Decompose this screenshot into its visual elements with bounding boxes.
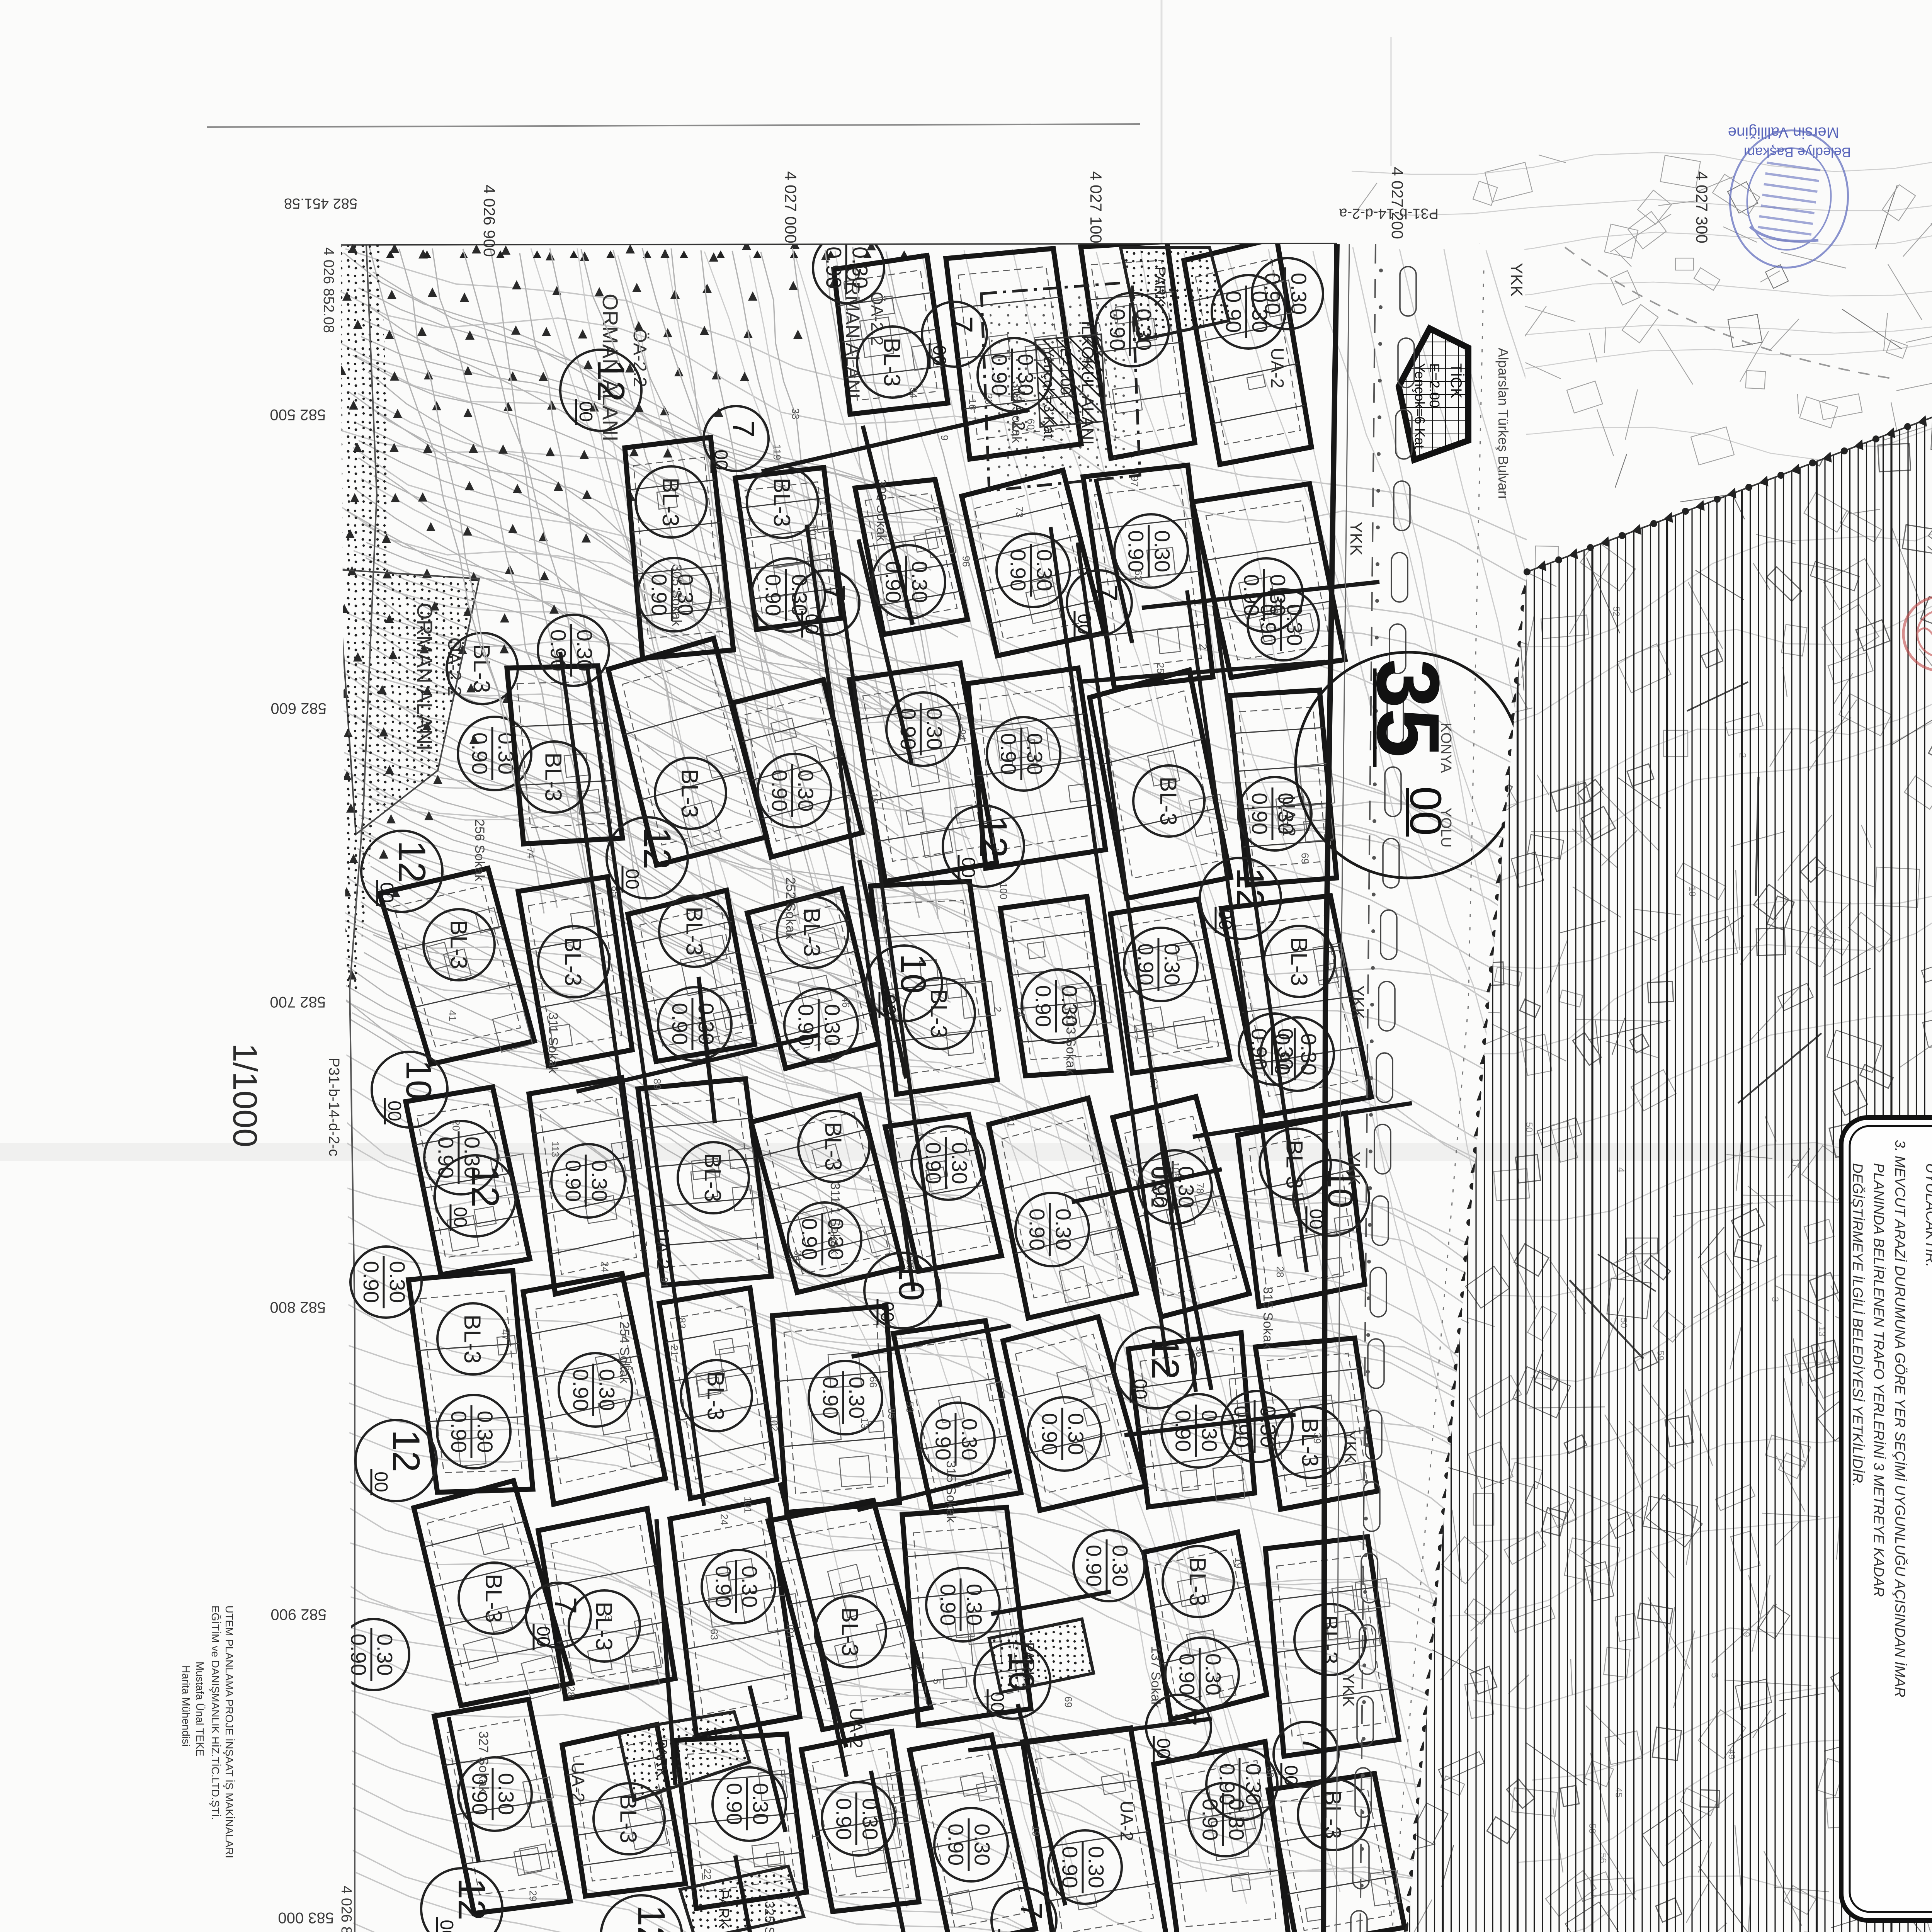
svg-text:24: 24 — [599, 1261, 611, 1272]
svg-text:52: 52 — [1611, 606, 1621, 617]
svg-text:47: 47 — [499, 1329, 511, 1340]
svg-text:0.90: 0.90 — [1230, 1406, 1254, 1448]
svg-text:582 451.58: 582 451.58 — [284, 195, 357, 211]
svg-text:12: 12 — [972, 815, 1015, 858]
svg-text:7: 7 — [1014, 1902, 1049, 1919]
svg-text:00: 00 — [533, 1626, 553, 1646]
svg-text:0.90: 0.90 — [468, 733, 492, 775]
svg-text:BL-3: BL-3 — [541, 753, 566, 802]
svg-text:00: 00 — [1130, 1379, 1150, 1399]
svg-text:Harita Mühendisi: Harita Mühendisi — [180, 1665, 192, 1747]
svg-text:0.30: 0.30 — [1023, 733, 1047, 775]
svg-text:254 Sokak: 254 Sokak — [617, 1321, 632, 1384]
svg-text:BL-3: BL-3 — [700, 1153, 726, 1202]
svg-text:4 027 000: 4 027 000 — [782, 171, 800, 243]
svg-text:0.30: 0.30 — [962, 1584, 986, 1626]
svg-text:315 Sokak: 315 Sokak — [1260, 1287, 1275, 1349]
svg-text:78: 78 — [1194, 1183, 1206, 1194]
svg-text:16: 16 — [967, 399, 978, 410]
svg-text:UYULACAKTIR.: UYULACAKTIR. — [1923, 1163, 1932, 1267]
svg-text:19: 19 — [1233, 1557, 1244, 1568]
svg-text:0.90: 0.90 — [767, 769, 792, 811]
svg-text:0.30: 0.30 — [970, 1823, 995, 1866]
svg-text:0.30: 0.30 — [957, 1418, 981, 1461]
svg-text:00: 00 — [1281, 1765, 1301, 1786]
svg-text:0.90: 0.90 — [447, 1411, 471, 1453]
svg-text:PARK: PARK — [653, 1739, 670, 1778]
svg-text:BL-3: BL-3 — [837, 1607, 863, 1656]
svg-text:100: 100 — [998, 883, 1009, 899]
svg-text:UA-2: UA-2 — [1117, 1801, 1137, 1841]
svg-text:BL-3: BL-3 — [879, 338, 905, 387]
svg-text:5: 5 — [931, 1679, 943, 1684]
svg-text:BL-3: BL-3 — [446, 920, 471, 969]
svg-text:20: 20 — [450, 1120, 462, 1131]
svg-text:12: 12 — [464, 1165, 507, 1207]
svg-text:DEĞİŞTİRMEYE İLGİLİ BELEDİYESİ: DEĞİŞTİRMEYE İLGİLİ BELEDİYESİ YETKİLİDİ… — [1850, 1163, 1866, 1487]
svg-text:0.30: 0.30 — [947, 1142, 972, 1184]
svg-text:25: 25 — [1155, 663, 1166, 674]
svg-text:69: 69 — [1299, 853, 1311, 864]
svg-text:4 026 852.08: 4 026 852.08 — [320, 247, 337, 333]
svg-text:PLANINDA BELİRLENEN TRAFO YERL: PLANINDA BELİRLENEN TRAFO YERLERİNİ 3 ME… — [1871, 1163, 1887, 1597]
svg-text:YKK: YKK — [1345, 1151, 1364, 1185]
svg-text:582 700: 582 700 — [270, 993, 326, 1010]
svg-text:0.30: 0.30 — [595, 1369, 619, 1411]
svg-text:59: 59 — [1655, 1350, 1666, 1361]
svg-text:311 Sokak: 311 Sokak — [546, 1012, 560, 1074]
svg-text:89: 89 — [651, 1078, 663, 1090]
svg-text:00: 00 — [436, 1920, 457, 1932]
svg-text:0.30: 0.30 — [587, 1160, 612, 1202]
svg-text:Belediye Başkanı: Belediye Başkanı — [1743, 145, 1851, 160]
svg-text:BL-3: BL-3 — [616, 1794, 641, 1843]
svg-text:KONYA: KONYA — [1438, 723, 1454, 773]
svg-text:BL-3: BL-3 — [677, 769, 703, 818]
svg-text:1/1000: 1/1000 — [226, 1043, 264, 1147]
svg-text:BL-3: BL-3 — [799, 908, 825, 957]
svg-text:BL-3: BL-3 — [459, 1315, 485, 1364]
svg-text:UA-2: UA-2 — [846, 1708, 866, 1748]
svg-text:0.30: 0.30 — [922, 708, 947, 750]
svg-text:BL-3: BL-3 — [481, 1574, 507, 1623]
svg-text:BL-3: BL-3 — [658, 478, 684, 527]
svg-text:BL-3: BL-3 — [820, 1122, 846, 1171]
svg-text:YKK: YKK — [1507, 263, 1526, 297]
svg-text:2: 2 — [992, 1007, 1003, 1012]
svg-text:0.90: 0.90 — [921, 1142, 946, 1184]
svg-text:12: 12 — [636, 827, 679, 869]
svg-text:P31-b-14-d-2-a: P31-b-14-d-2-a — [1338, 205, 1439, 221]
svg-text:0.90: 0.90 — [936, 1584, 960, 1626]
svg-text:0.90: 0.90 — [944, 1823, 968, 1866]
svg-text:0.90: 0.90 — [1260, 273, 1285, 315]
svg-text:94: 94 — [908, 387, 920, 398]
svg-text:256 Sokak: 256 Sokak — [472, 819, 487, 882]
svg-text:0.30: 0.30 — [1150, 530, 1175, 572]
svg-text:0.30: 0.30 — [787, 574, 812, 616]
svg-text:1: 1 — [810, 1834, 821, 1839]
svg-text:309 Sokak: 309 Sokak — [874, 479, 889, 542]
svg-text:0.90: 0.90 — [561, 1160, 585, 1202]
svg-text:0.30: 0.30 — [1282, 604, 1307, 646]
svg-text:12: 12 — [590, 359, 633, 402]
svg-text:22: 22 — [702, 1869, 713, 1880]
svg-text:0.90: 0.90 — [434, 1136, 458, 1179]
svg-text:YKK: YKK — [1341, 1430, 1360, 1464]
svg-text:Mersin Valiliğine: Mersin Valiliğine — [1728, 124, 1839, 141]
svg-text:12: 12 — [630, 1905, 673, 1932]
svg-text:BL-3: BL-3 — [681, 906, 707, 956]
svg-text:0.90: 0.90 — [1175, 1653, 1199, 1696]
svg-text:BL-3: BL-3 — [560, 937, 586, 986]
svg-text:7: 7 — [817, 585, 852, 602]
svg-text:00: 00 — [622, 869, 642, 889]
svg-text:0.30: 0.30 — [848, 247, 872, 289]
svg-text:0.90: 0.90 — [818, 1376, 843, 1418]
svg-text:0.90: 0.90 — [821, 247, 846, 289]
svg-text:113: 113 — [549, 1141, 561, 1157]
svg-text:BL-3: BL-3 — [1155, 777, 1181, 826]
svg-text:39: 39 — [1311, 1433, 1323, 1444]
svg-text:00: 00 — [376, 882, 397, 903]
svg-text:85: 85 — [886, 1408, 898, 1419]
svg-text:12: 12 — [385, 1430, 428, 1472]
svg-text:69: 69 — [1063, 1696, 1074, 1708]
svg-text:4 027 100: 4 027 100 — [1087, 171, 1105, 243]
svg-text:94: 94 — [957, 729, 968, 740]
svg-text:YKK: YKK — [1349, 985, 1367, 1019]
svg-text:İLKOKUL ALANI: İLKOKUL ALANI — [1078, 321, 1097, 445]
svg-text:0.90: 0.90 — [1006, 549, 1031, 591]
svg-text:0.30: 0.30 — [820, 1004, 845, 1046]
svg-text:0.30: 0.30 — [494, 1773, 519, 1815]
svg-text:0.90: 0.90 — [997, 733, 1021, 775]
svg-text:582 500: 582 500 — [270, 406, 326, 423]
svg-text:0.90: 0.90 — [761, 574, 786, 616]
svg-text:BL-3: BL-3 — [703, 1371, 729, 1420]
svg-text:4 026 900: 4 026 900 — [480, 185, 498, 257]
svg-text:0.90: 0.90 — [1025, 1208, 1049, 1250]
svg-text:101: 101 — [742, 1497, 754, 1513]
svg-text:E=1.00: E=1.00 — [1057, 348, 1073, 395]
svg-text:0.30: 0.30 — [748, 1783, 773, 1825]
svg-text:0.30: 0.30 — [1241, 1763, 1265, 1805]
svg-text:0.30: 0.30 — [373, 1634, 397, 1676]
svg-text:BL-3: BL-3 — [1185, 1557, 1211, 1606]
svg-text:582 600: 582 600 — [270, 700, 327, 717]
svg-text:305 Sokak: 305 Sokak — [669, 564, 684, 627]
svg-text:0.90: 0.90 — [722, 1783, 747, 1825]
svg-text:311/1 Sokak: 311/1 Sokak — [828, 1182, 842, 1255]
svg-text:10: 10 — [399, 1060, 439, 1100]
svg-text:00: 00 — [958, 857, 978, 878]
svg-text:0.30: 0.30 — [1051, 1208, 1076, 1250]
svg-text:00: 00 — [371, 1471, 391, 1492]
svg-text:7: 7 — [726, 420, 761, 437]
svg-text:Alparslan Türkeş Bulvarı: Alparslan Türkeş Bulvarı — [1495, 348, 1511, 499]
svg-text:0.30: 0.30 — [1160, 943, 1184, 985]
svg-text:582 800: 582 800 — [270, 1299, 326, 1316]
svg-text:50: 50 — [1618, 1318, 1629, 1328]
svg-text:EĞİTİM ve DANIŞMANLIK HİZ.TİC.: EĞİTİM ve DANIŞMANLIK HİZ.TİC.LTD.ŞTİ. — [209, 1605, 221, 1820]
svg-text:00: 00 — [1153, 1738, 1173, 1759]
svg-text:0.30: 0.30 — [1108, 1545, 1133, 1587]
svg-text:0.90: 0.90 — [1248, 793, 1272, 835]
svg-text:62: 62 — [1133, 570, 1144, 581]
svg-text:46: 46 — [840, 997, 852, 1008]
svg-text:UTEM PLANLAMA PROJE İNŞAAT İŞ: UTEM PLANLAMA PROJE İNŞAAT İŞ MAKİNALARI — [223, 1605, 235, 1858]
svg-text:0.90: 0.90 — [1124, 530, 1148, 572]
svg-text:2: 2 — [1197, 644, 1209, 649]
svg-text:583 000: 583 000 — [278, 1909, 334, 1926]
svg-text:00: 00 — [384, 1100, 405, 1121]
svg-text:74: 74 — [1015, 1006, 1027, 1017]
svg-text:E=2.00: E=2.00 — [1427, 363, 1442, 408]
svg-text:00: 00 — [711, 449, 731, 470]
svg-text:91: 91 — [659, 1277, 670, 1288]
svg-text:UA-2: UA-2 — [568, 1762, 588, 1803]
svg-text:29: 29 — [527, 1890, 539, 1901]
svg-text:0.30: 0.30 — [1197, 1410, 1222, 1452]
svg-text:00: 00 — [877, 1301, 897, 1322]
svg-text:0.30: 0.30 — [1256, 1406, 1281, 1448]
svg-text:56: 56 — [1597, 1853, 1608, 1863]
svg-text:7: 7 — [549, 1597, 583, 1614]
svg-text:0.90: 0.90 — [711, 1566, 736, 1608]
svg-text:10: 10 — [893, 954, 934, 993]
svg-text:12: 12 — [451, 1878, 493, 1920]
svg-text:19: 19 — [1030, 1825, 1042, 1837]
svg-text:96: 96 — [960, 556, 972, 567]
svg-text:0.90: 0.90 — [1037, 1413, 1062, 1455]
svg-text:TİCK: TİCK — [1447, 363, 1465, 398]
svg-text:63: 63 — [709, 1629, 720, 1640]
svg-text:PARK: PARK — [1020, 1642, 1037, 1681]
svg-text:12: 12 — [391, 840, 434, 883]
svg-text:9: 9 — [939, 435, 951, 440]
svg-text:313 Sokak: 313 Sokak — [1063, 1012, 1078, 1075]
svg-text:Yençok=3 Kat: Yençok=3 Kat — [1041, 348, 1057, 439]
svg-text:BL-3: BL-3 — [1286, 937, 1312, 986]
svg-text:21: 21 — [1005, 1116, 1017, 1128]
svg-text:P31-b-14-d-2-c: P31-b-14-d-2-c — [326, 1058, 342, 1156]
svg-text:0.90: 0.90 — [832, 1798, 856, 1840]
svg-text:252 Sokak: 252 Sokak — [783, 877, 798, 940]
svg-text:66: 66 — [867, 1376, 879, 1388]
svg-text:0.30: 0.30 — [738, 1566, 762, 1608]
svg-text:Mustafa Ünal TEKE: Mustafa Ünal TEKE — [194, 1662, 206, 1756]
svg-text:0.90: 0.90 — [1082, 1545, 1106, 1587]
svg-text:0.30: 0.30 — [573, 629, 597, 672]
svg-text:BL-3: BL-3 — [769, 478, 795, 527]
svg-text:0.90: 0.90 — [668, 1003, 692, 1045]
svg-text:28: 28 — [565, 1686, 577, 1697]
svg-text:582 900: 582 900 — [270, 1606, 327, 1623]
svg-text:0.90: 0.90 — [359, 1261, 383, 1303]
svg-text:YOLU: YOLU — [1438, 808, 1454, 847]
svg-text:21: 21 — [669, 1345, 680, 1356]
svg-text:3: 3 — [603, 1615, 614, 1620]
svg-text:BL-3: BL-3 — [591, 1602, 617, 1651]
svg-text:0.30: 0.30 — [473, 1411, 497, 1453]
svg-text:0.90: 0.90 — [647, 574, 672, 616]
svg-text:0.30: 0.30 — [1287, 273, 1311, 315]
svg-text:53: 53 — [904, 1401, 916, 1413]
svg-text:PARK: PARK — [1152, 267, 1168, 306]
svg-text:0.90: 0.90 — [546, 629, 571, 672]
svg-text:13: 13 — [859, 1418, 871, 1429]
svg-text:UA-2: UA-2 — [1267, 348, 1287, 388]
svg-text:00: 00 — [987, 1692, 1007, 1712]
svg-text:UA-2: UA-2 — [1279, 796, 1299, 837]
svg-text:45: 45 — [1613, 1787, 1624, 1798]
svg-text:0.30: 0.30 — [794, 769, 818, 811]
svg-text:0.90: 0.90 — [1256, 604, 1281, 646]
svg-text:0.90: 0.90 — [1031, 985, 1056, 1027]
svg-text:4 026 857.43: 4 026 857.43 — [338, 1886, 354, 1932]
svg-text:4 027 200: 4 027 200 — [1388, 167, 1406, 239]
svg-text:0.30: 0.30 — [1064, 1413, 1088, 1455]
svg-text:34: 34 — [792, 1250, 804, 1261]
svg-text:119: 119 — [771, 444, 783, 460]
svg-text:41: 41 — [447, 1010, 458, 1021]
svg-text:YKK: YKK — [1339, 1673, 1358, 1707]
svg-text:0.30: 0.30 — [385, 1261, 410, 1303]
svg-text:33: 33 — [790, 408, 801, 419]
svg-text:0.90: 0.90 — [931, 1418, 955, 1461]
svg-text:74: 74 — [525, 847, 537, 859]
svg-text:5: 5 — [1709, 1673, 1720, 1678]
svg-text:00: 00 — [929, 345, 949, 366]
svg-text:28: 28 — [1274, 1266, 1286, 1277]
svg-text:00: 00 — [575, 401, 596, 422]
svg-text:49: 49 — [1726, 1749, 1737, 1760]
svg-text:327 Sokak: 327 Sokak — [476, 1731, 491, 1794]
svg-text:0.30: 0.30 — [908, 561, 932, 603]
svg-text:BL-3: BL-3 — [1316, 1615, 1342, 1664]
svg-text:4 027 300: 4 027 300 — [1693, 171, 1711, 243]
svg-text:0.90: 0.90 — [568, 1369, 593, 1411]
svg-text:102: 102 — [769, 1415, 780, 1431]
svg-text:7: 7 — [945, 316, 979, 333]
svg-text:73: 73 — [1014, 507, 1026, 518]
svg-text:0.90: 0.90 — [1215, 1763, 1239, 1805]
svg-text:PARK: PARK — [715, 1889, 731, 1929]
svg-text:101: 101 — [784, 1622, 796, 1639]
svg-text:24: 24 — [718, 1514, 730, 1525]
svg-text:00: 00 — [450, 1207, 470, 1227]
svg-text:0.30: 0.30 — [845, 1376, 869, 1418]
svg-text:3. MEVCUT ARAZİ DURUMUNA GÖRE: 3. MEVCUT ARAZİ DURUMUNA GÖRE YER SEÇİMİ… — [1892, 1140, 1908, 1697]
svg-text:315 Sokak: 315 Sokak — [944, 1461, 958, 1523]
svg-text:0.30: 0.30 — [1084, 1846, 1109, 1888]
svg-text:YKK: YKK — [1347, 522, 1366, 556]
svg-text:0.30: 0.30 — [1201, 1653, 1226, 1696]
